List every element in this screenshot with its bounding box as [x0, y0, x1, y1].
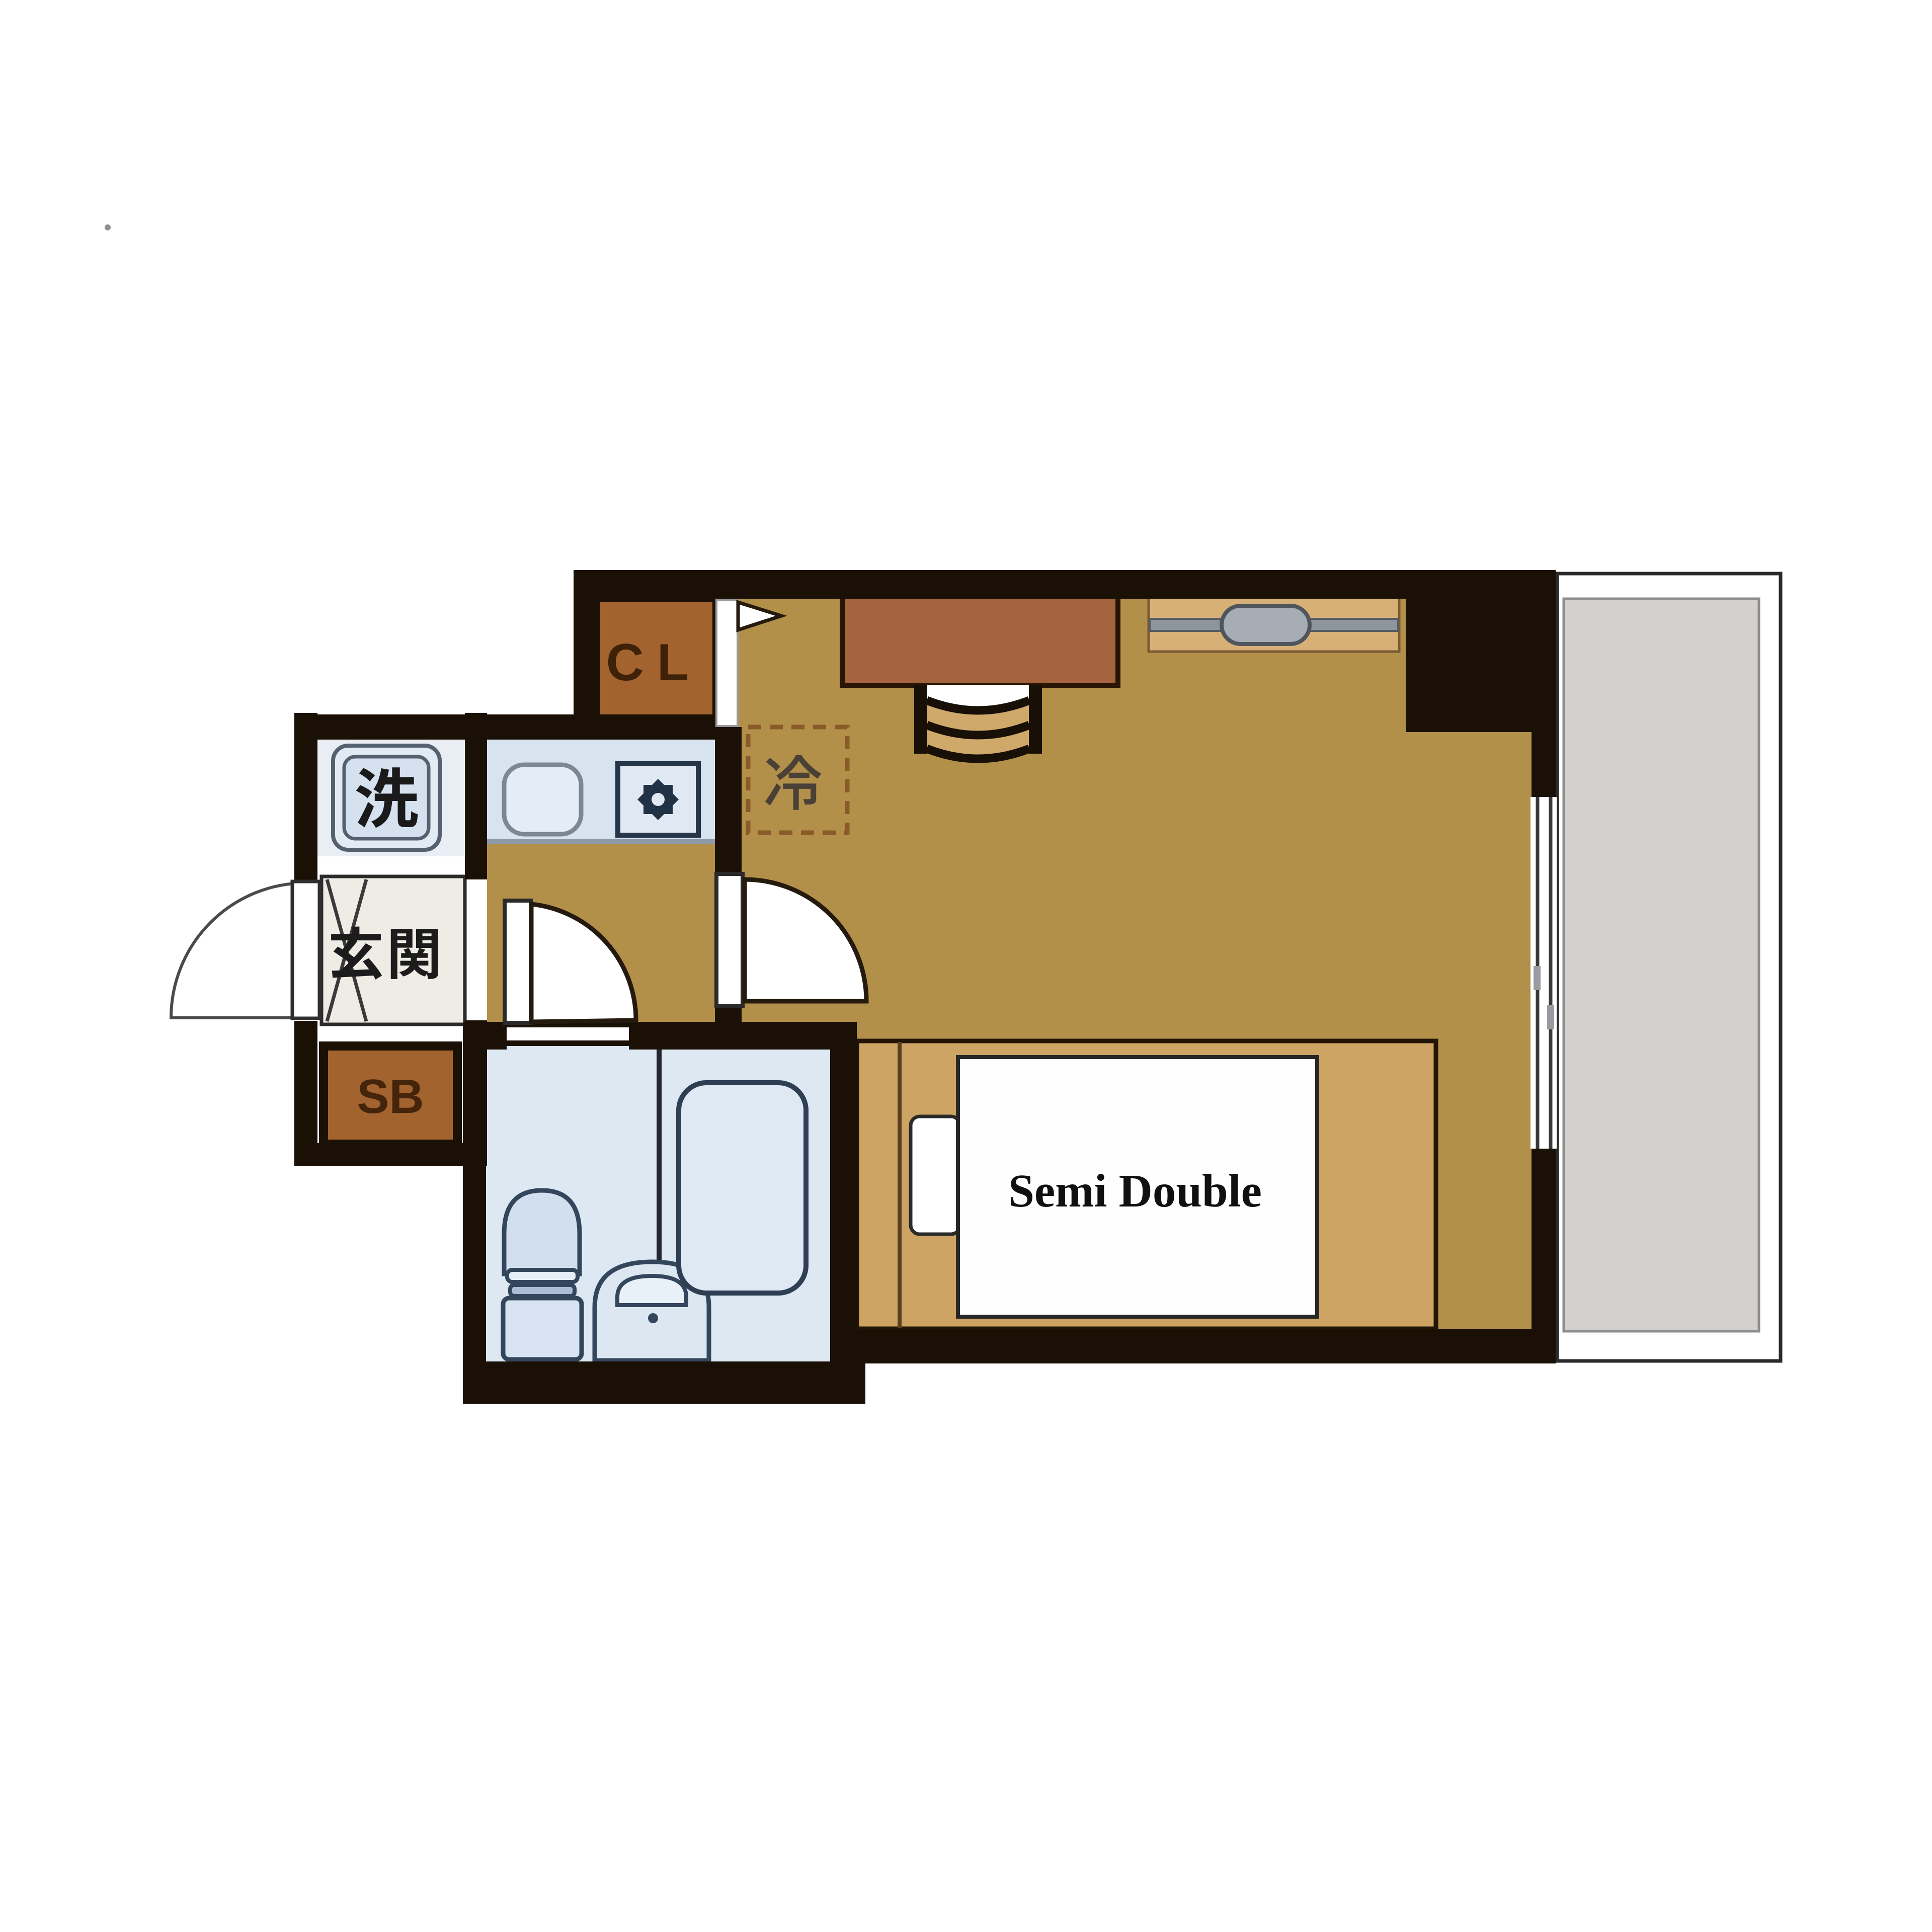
svg-text:CL: CL — [606, 633, 702, 692]
svg-text:SB: SB — [357, 1070, 424, 1123]
svg-text:Semi Double: Semi Double — [1008, 1165, 1262, 1217]
